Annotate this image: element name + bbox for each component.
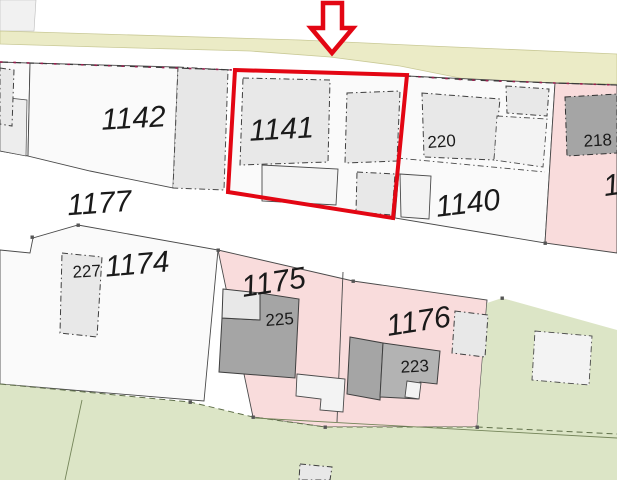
cadastral-map: 1142 1141 1177 1140 1174 1175 1176 1 220… bbox=[0, 0, 617, 480]
parcel-strip-1142-1141 bbox=[173, 67, 228, 190]
building-label-220: 220 bbox=[427, 131, 457, 152]
building-label-223: 223 bbox=[400, 356, 429, 376]
building-label-225: 225 bbox=[265, 309, 295, 330]
parcel-label-1177: 1177 bbox=[66, 185, 134, 223]
building-1141-small bbox=[356, 172, 395, 215]
parcel-label-1142: 1142 bbox=[100, 100, 166, 136]
subparcel-1176-right bbox=[452, 311, 488, 357]
building-223-left bbox=[347, 337, 383, 400]
parcel-top-left-strip bbox=[0, 0, 36, 31]
building-1140-small bbox=[400, 174, 431, 219]
building-220-top bbox=[506, 86, 549, 116]
subparcel-green-bottom bbox=[299, 464, 332, 480]
subparcel-green-right bbox=[532, 331, 592, 385]
parcel-label-1174: 1174 bbox=[104, 245, 171, 283]
building-1141-right bbox=[345, 91, 400, 163]
subparcel-220-right bbox=[494, 116, 547, 167]
building-left-edge bbox=[0, 68, 14, 126]
building-label-227: 227 bbox=[72, 261, 101, 281]
parcel-label-1141: 1141 bbox=[248, 111, 314, 147]
building-label-218: 218 bbox=[583, 130, 612, 150]
building-223-notch bbox=[405, 381, 421, 399]
